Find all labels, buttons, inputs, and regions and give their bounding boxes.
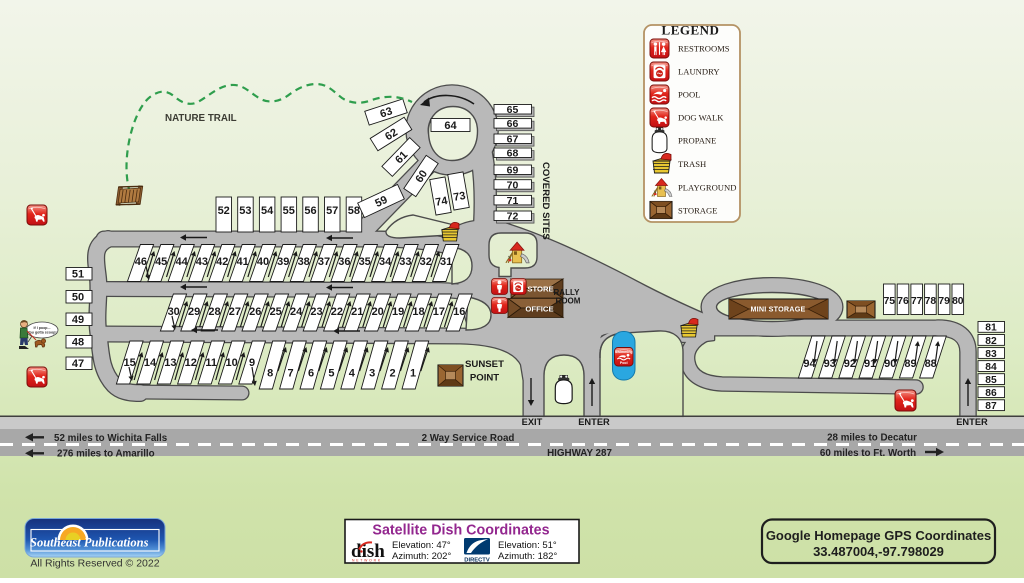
svg-text:72: 72 (507, 211, 519, 223)
svg-text:50: 50 (72, 292, 84, 304)
svg-text:28 miles to Decatur: 28 miles to Decatur (827, 433, 917, 444)
svg-text:PROPANE: PROPANE (678, 136, 716, 146)
svg-text:Google Homepage GPS Coordinate: Google Homepage GPS Coordinates (766, 528, 991, 543)
svg-text:40: 40 (257, 256, 269, 268)
svg-text:STORAGE: STORAGE (678, 206, 717, 216)
svg-text:LEGEND: LEGEND (662, 23, 720, 38)
svg-text:20: 20 (372, 306, 384, 318)
svg-text:48: 48 (72, 337, 84, 349)
svg-text:38: 38 (298, 256, 310, 268)
svg-text:84: 84 (985, 362, 997, 373)
svg-text:13: 13 (164, 357, 176, 369)
svg-text:81: 81 (985, 323, 997, 334)
svg-text:37: 37 (318, 256, 330, 268)
svg-text:Elevation: 47°: Elevation: 47° (392, 540, 451, 551)
svg-text:85: 85 (985, 375, 997, 386)
svg-text:58: 58 (348, 205, 360, 217)
svg-text:51: 51 (72, 269, 84, 281)
svg-text:If I poop...: If I poop... (34, 326, 51, 330)
svg-text:NATURE TRAIL: NATURE TRAIL (165, 113, 237, 124)
svg-text:68: 68 (507, 148, 519, 160)
svg-text:45: 45 (155, 256, 167, 268)
svg-text:Satellite Dish Coordinates: Satellite Dish Coordinates (372, 523, 549, 539)
svg-text:SUNSET: SUNSET (465, 359, 504, 370)
svg-text:86: 86 (985, 388, 997, 399)
svg-text:POINT: POINT (470, 373, 499, 384)
svg-text:64: 64 (444, 120, 457, 132)
svg-text:ENTER: ENTER (578, 417, 610, 427)
svg-text:All Rights Reserved © 2022: All Rights Reserved © 2022 (30, 558, 159, 570)
svg-text:NETWORK: NETWORK (352, 559, 382, 563)
svg-text:83: 83 (985, 349, 997, 360)
svg-text:ROOM: ROOM (556, 297, 581, 306)
svg-text:53: 53 (239, 205, 251, 217)
svg-text:46: 46 (135, 256, 147, 268)
svg-text:276 miles to Amarillo: 276 miles to Amarillo (57, 448, 155, 459)
svg-text:80: 80 (952, 296, 964, 307)
svg-text:60 miles to Ft. Worth: 60 miles to Ft. Worth (820, 448, 916, 459)
svg-text:11: 11 (205, 357, 217, 369)
svg-text:87: 87 (985, 401, 997, 412)
svg-text:28: 28 (208, 306, 220, 318)
svg-text:56: 56 (304, 205, 316, 217)
svg-text:25: 25 (270, 306, 282, 318)
svg-text:POOL: POOL (678, 90, 700, 100)
svg-text:TRASH: TRASH (678, 159, 706, 169)
svg-text:52: 52 (218, 205, 230, 217)
svg-text:14: 14 (144, 357, 157, 369)
svg-text:79: 79 (938, 296, 950, 307)
svg-text:54: 54 (261, 205, 274, 217)
svg-text:3: 3 (369, 368, 375, 380)
svg-text:55: 55 (283, 205, 295, 217)
svg-text:Azimuth: 182°: Azimuth: 182° (498, 551, 557, 562)
svg-text:23: 23 (310, 306, 322, 318)
svg-text:Elevation: 51°: Elevation: 51° (498, 540, 557, 551)
svg-text:78: 78 (925, 296, 937, 307)
svg-text:49: 49 (72, 314, 84, 326)
svg-text:7: 7 (288, 368, 294, 380)
svg-text:75: 75 (884, 296, 896, 307)
svg-text:ENTER: ENTER (956, 417, 988, 427)
svg-text:35: 35 (359, 256, 371, 268)
svg-text:65: 65 (507, 104, 519, 116)
svg-text:22: 22 (331, 306, 343, 318)
svg-text:27: 27 (229, 306, 241, 318)
svg-text:41: 41 (236, 256, 248, 268)
svg-text:32: 32 (420, 256, 432, 268)
svg-text:19: 19 (392, 306, 404, 318)
svg-text:EXIT: EXIT (522, 417, 543, 427)
svg-text:26: 26 (249, 306, 261, 318)
svg-text:29: 29 (188, 306, 200, 318)
svg-text:33.487004,-97.798029: 33.487004,-97.798029 (813, 544, 944, 559)
svg-text:18: 18 (412, 306, 424, 318)
svg-text:47: 47 (72, 358, 84, 370)
svg-text:5: 5 (328, 368, 334, 380)
svg-text:33: 33 (399, 256, 411, 268)
svg-text:88: 88 (925, 358, 937, 370)
svg-text:31: 31 (440, 256, 452, 268)
svg-text:70: 70 (507, 179, 519, 191)
svg-text:42: 42 (216, 256, 228, 268)
svg-text:12: 12 (185, 357, 197, 369)
svg-text:2: 2 (390, 368, 396, 380)
svg-text:73: 73 (452, 190, 466, 204)
svg-text:Southeast Publications: Southeast Publications (30, 536, 149, 550)
svg-text:89: 89 (904, 358, 916, 370)
svg-text:4: 4 (349, 368, 356, 380)
svg-text:8: 8 (267, 368, 273, 380)
svg-text:34: 34 (379, 256, 392, 268)
svg-text:52 miles to Wichita Falls: 52 miles to Wichita Falls (54, 433, 168, 444)
svg-text:71: 71 (507, 195, 519, 207)
svg-text:43: 43 (196, 256, 208, 268)
svg-text:66: 66 (507, 118, 519, 130)
svg-text:16: 16 (453, 306, 465, 318)
svg-text:DOG WALK: DOG WALK (678, 113, 724, 123)
svg-text:77: 77 (911, 296, 923, 307)
svg-text:HIGHWAY 287: HIGHWAY 287 (547, 448, 612, 459)
svg-text:Azimuth: 202°: Azimuth: 202° (392, 551, 451, 562)
svg-text:24: 24 (290, 306, 303, 318)
svg-text:2 Way Service Road: 2 Way Service Road (422, 433, 515, 444)
svg-text:Swimming: Swimming (615, 350, 633, 354)
svg-text:STORE: STORE (527, 285, 553, 294)
svg-text:LAUNDRY: LAUNDRY (678, 67, 720, 77)
svg-text:30: 30 (168, 306, 180, 318)
svg-text:OFFICE: OFFICE (525, 305, 553, 314)
svg-text:57: 57 (326, 205, 338, 217)
svg-text:Pool: Pool (620, 361, 628, 365)
svg-text:21: 21 (351, 306, 363, 318)
svg-text:69: 69 (507, 165, 519, 177)
svg-text:17: 17 (433, 306, 445, 318)
svg-text:PLAYGROUND: PLAYGROUND (678, 183, 736, 193)
svg-text:76: 76 (897, 296, 909, 307)
svg-text:DIRECTV: DIRECTV (464, 558, 490, 564)
svg-text:6: 6 (308, 368, 314, 380)
svg-text:1: 1 (410, 368, 416, 380)
svg-text:36: 36 (338, 256, 350, 268)
svg-text:44: 44 (175, 256, 188, 268)
svg-text:RESTROOMS: RESTROOMS (678, 44, 730, 54)
svg-text:67: 67 (507, 134, 519, 146)
svg-text:You gotta scoop!: You gotta scoop! (27, 330, 56, 334)
svg-text:COVERED SITES: COVERED SITES (540, 162, 551, 240)
svg-text:MINI STORAGE: MINI STORAGE (751, 305, 806, 314)
svg-text:82: 82 (985, 336, 997, 347)
svg-text:39: 39 (277, 256, 289, 268)
svg-text:10: 10 (225, 357, 237, 369)
